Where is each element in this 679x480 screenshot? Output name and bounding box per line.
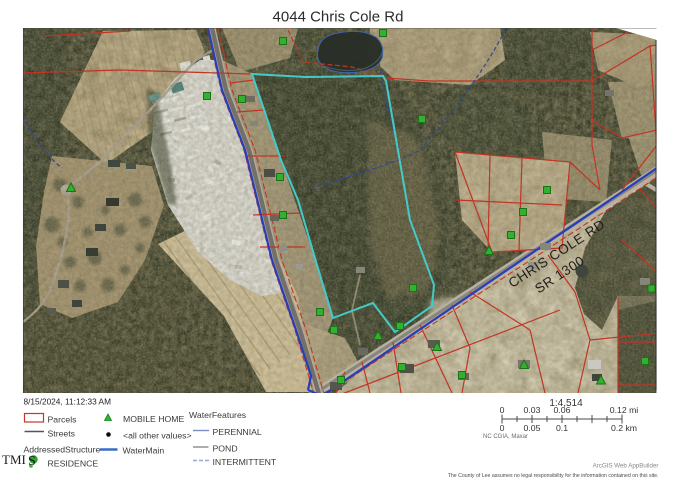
svg-text:POND: POND [213, 444, 238, 454]
svg-text:TMI: TMI [2, 452, 26, 467]
svg-text:WaterFeatures: WaterFeatures [189, 410, 247, 420]
svg-text:Streets: Streets [48, 429, 76, 439]
svg-text:ArcGIS Web AppBuilder: ArcGIS Web AppBuilder [593, 463, 659, 470]
svg-text:INTERMITTENT: INTERMITTENT [213, 457, 277, 467]
svg-text:0.2 km: 0.2 km [611, 423, 637, 433]
svg-text:0.1: 0.1 [556, 423, 568, 433]
svg-text:4044 Chris Cole Rd: 4044 Chris Cole Rd [273, 9, 404, 26]
svg-text:PERENNIAL: PERENNIAL [213, 427, 262, 437]
svg-text:AddressedStructure: AddressedStructure [24, 445, 101, 455]
svg-text:<all other values>: <all other values> [123, 431, 192, 441]
svg-text:0: 0 [500, 405, 505, 415]
svg-text:The County of Lee assumes no l: The County of Lee assumes no legal respo… [448, 473, 659, 479]
svg-text:0.05: 0.05 [524, 423, 541, 433]
svg-text:RESIDENCE: RESIDENCE [48, 459, 99, 469]
svg-text:WaterMain: WaterMain [123, 446, 165, 456]
svg-text:0.06: 0.06 [554, 405, 571, 415]
svg-text:0: 0 [500, 423, 505, 433]
svg-text:0.03: 0.03 [524, 405, 541, 415]
svg-text:NC CGIA, Maxar: NC CGIA, Maxar [483, 434, 528, 440]
svg-text:S: S [28, 454, 36, 469]
svg-text:Parcels: Parcels [48, 415, 78, 425]
svg-text:8/15/2024, 11:12:33 AM: 8/15/2024, 11:12:33 AM [24, 397, 112, 407]
svg-text:MOBILE HOME: MOBILE HOME [123, 414, 185, 424]
svg-text:0.12 mi: 0.12 mi [610, 405, 639, 415]
